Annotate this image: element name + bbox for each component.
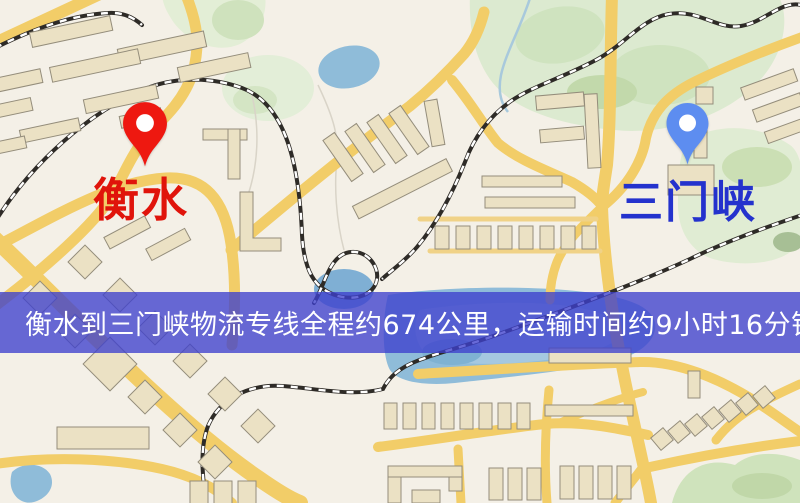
destination-pin-icon[interactable] [665,102,710,166]
map-background [0,0,800,503]
origin-label: 衡水 [93,177,189,223]
destination-label: 三门峡 [619,181,757,225]
route-info-text: 衡水到三门峡物流专线全程约674公里，运输时间约9小时16分钟. [0,303,800,342]
map-canvas[interactable]: 衡水 三门峡 衡水到三门峡物流专线全程约674公里，运输时间约9小时16分钟. [0,0,800,503]
origin-pin-icon[interactable] [122,101,168,168]
route-info-banner: 衡水到三门峡物流专线全程约674公里，运输时间约9小时16分钟. [0,292,800,353]
